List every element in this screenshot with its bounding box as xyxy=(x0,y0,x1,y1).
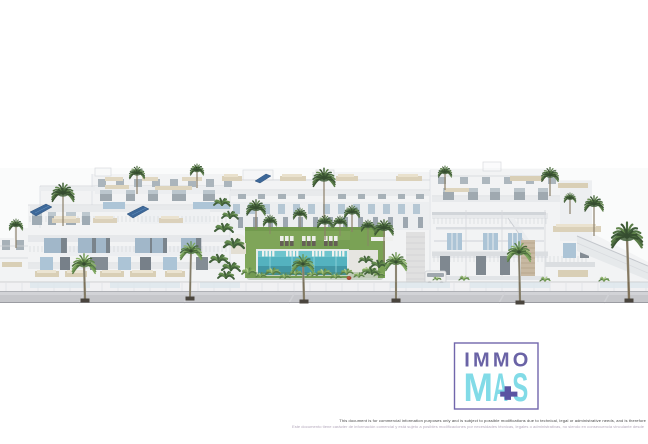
svg-text:S: S xyxy=(512,366,528,410)
svg-text:M: M xyxy=(464,366,493,410)
